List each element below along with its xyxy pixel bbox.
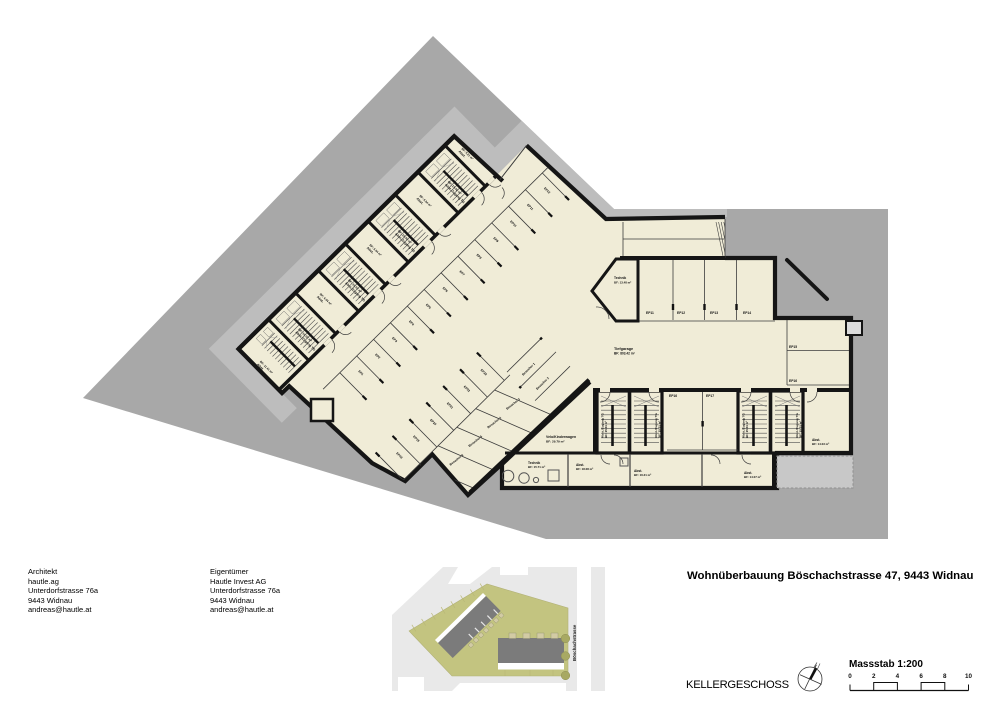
svg-text:BF: 18.08 m²: BF: 18.08 m²: [576, 467, 593, 471]
svg-text:BF: 29.79 m²: BF: 29.79 m²: [546, 440, 564, 444]
svg-text:BF: 15.01 m²: BF: 15.01 m²: [799, 421, 803, 438]
svg-text:BF: 15.01 m²: BF: 15.01 m²: [604, 421, 608, 438]
svg-text:8: 8: [943, 673, 947, 680]
svg-text:2: 2: [872, 673, 876, 680]
svg-text:EP13: EP13: [710, 311, 718, 315]
svg-text:BF: 15.01 m²: BF: 15.01 m²: [745, 421, 749, 438]
svg-text:EP11: EP11: [646, 311, 654, 315]
svg-text:EP12: EP12: [677, 311, 685, 315]
svg-text:10: 10: [965, 673, 973, 680]
svg-text:EP17: EP17: [706, 394, 714, 398]
svg-text:BF: 803.42 m²: BF: 803.42 m²: [614, 352, 635, 356]
svg-text:BF: 15.71 m²: BF: 15.71 m²: [528, 465, 545, 469]
svg-text:Velo/Kinderwagen: Velo/Kinderwagen: [546, 435, 576, 439]
svg-text:BF: 16.21 m²: BF: 16.21 m²: [634, 473, 651, 477]
svg-text:EP14: EP14: [743, 311, 751, 315]
svg-text:Tiefgarage: Tiefgarage: [614, 347, 633, 351]
svg-text:BF: 15.01 m²: BF: 15.01 m²: [658, 421, 662, 438]
svg-text:4: 4: [896, 673, 900, 680]
svg-text:EP15: EP15: [789, 345, 797, 349]
svg-text:BF: 13.48 m²: BF: 13.48 m²: [614, 281, 631, 285]
svg-text:6: 6: [919, 673, 923, 680]
svg-text:0: 0: [848, 673, 852, 680]
svg-text:BF: 14.03 m²: BF: 14.03 m²: [812, 442, 829, 446]
svg-text:EP16: EP16: [669, 394, 677, 398]
svg-text:Technik: Technik: [614, 276, 626, 280]
svg-text:Böschachstrasse: Böschachstrasse: [572, 624, 577, 661]
svg-text:BF: 14.07 m²: BF: 14.07 m²: [744, 475, 761, 479]
svg-text:EP16: EP16: [789, 379, 797, 383]
